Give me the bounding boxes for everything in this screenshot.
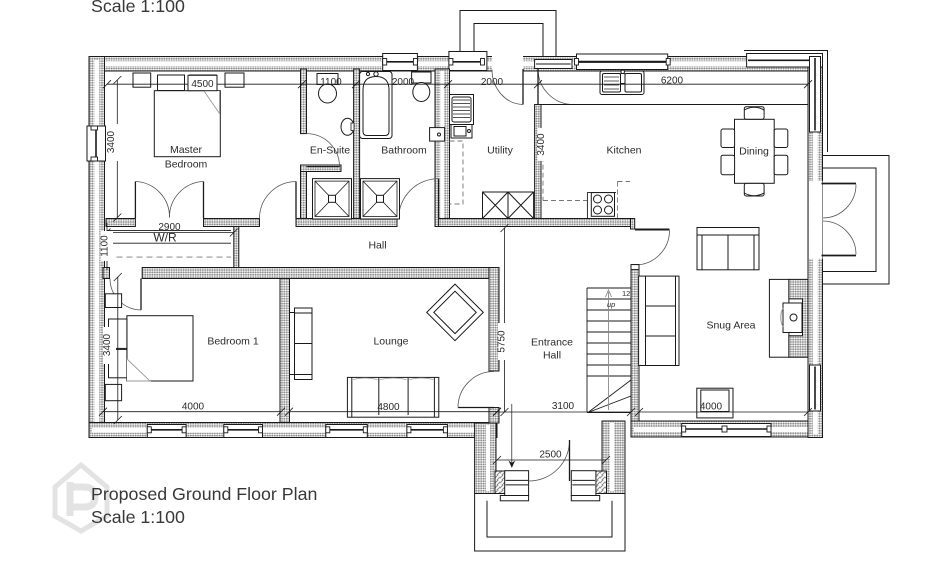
svg-text:En-Suite: En-Suite xyxy=(310,145,350,157)
svg-text:2500: 2500 xyxy=(539,450,562,461)
svg-text:Bedroom 1: Bedroom 1 xyxy=(207,336,259,348)
svg-text:Kitchen: Kitchen xyxy=(606,145,641,157)
svg-text:Master: Master xyxy=(170,144,203,156)
svg-text:2000: 2000 xyxy=(481,77,504,88)
svg-text:up: up xyxy=(607,300,615,309)
svg-text:Utility: Utility xyxy=(487,145,513,157)
svg-text:Scale 1:100: Scale 1:100 xyxy=(91,507,185,527)
svg-text:Entrance: Entrance xyxy=(531,337,573,349)
svg-text:W/R: W/R xyxy=(153,231,177,245)
svg-text:4000: 4000 xyxy=(700,402,723,413)
svg-text:Bathroom: Bathroom xyxy=(381,145,427,157)
svg-text:12: 12 xyxy=(622,289,630,298)
svg-text:3100: 3100 xyxy=(552,401,575,412)
svg-text:4000: 4000 xyxy=(182,402,205,413)
svg-text:1100: 1100 xyxy=(100,235,111,257)
svg-text:6200: 6200 xyxy=(661,76,684,87)
svg-text:Hall: Hall xyxy=(368,240,386,252)
svg-text:Proposed Ground Floor Plan: Proposed Ground Floor Plan xyxy=(91,484,317,504)
svg-text:5750: 5750 xyxy=(497,330,508,353)
svg-text:Hall: Hall xyxy=(543,350,561,362)
svg-text:Bedroom: Bedroom xyxy=(165,159,208,171)
svg-text:Lounge: Lounge xyxy=(373,336,408,348)
svg-text:2000: 2000 xyxy=(392,77,415,88)
svg-text:4500: 4500 xyxy=(191,79,214,90)
svg-text:Snug Area: Snug Area xyxy=(706,320,755,332)
svg-text:4800: 4800 xyxy=(377,402,400,413)
svg-text:3400: 3400 xyxy=(106,130,117,153)
svg-text:Dining: Dining xyxy=(739,146,769,158)
svg-text:Scale 1:100: Scale 1:100 xyxy=(91,0,185,16)
svg-text:1100: 1100 xyxy=(320,77,342,88)
svg-text:3400: 3400 xyxy=(536,133,547,156)
svg-text:3400: 3400 xyxy=(102,333,113,356)
